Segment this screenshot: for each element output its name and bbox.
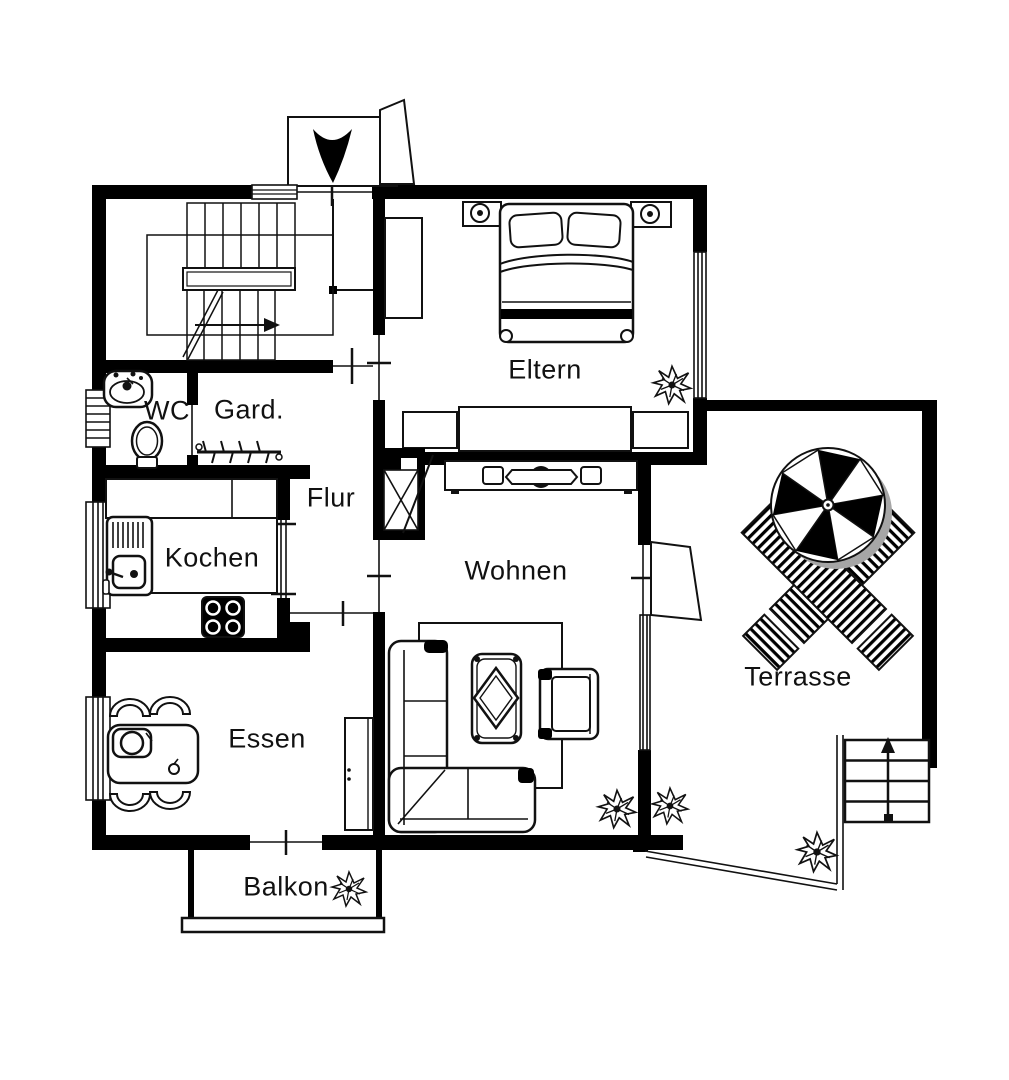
staircase-icon — [147, 203, 333, 360]
wardrobe-icon — [385, 218, 422, 318]
room-label-terrasse: Terrasse — [744, 662, 852, 693]
plant-icon — [332, 872, 366, 906]
coffee-table-icon — [472, 654, 521, 743]
window-icon — [252, 185, 297, 199]
kitchen-sink-icon — [103, 517, 152, 595]
outdoor-stairs-icon — [845, 737, 929, 823]
bedroom — [385, 202, 688, 451]
floor-plan-drawing — [0, 0, 1009, 1080]
floor-plan: WC Gard. Flur Kochen Eltern Wohnen Essen… — [0, 0, 1009, 1080]
nightstand-lamp-icon — [631, 202, 671, 227]
canopy-icon — [380, 100, 414, 184]
room-label-wc: WC — [144, 396, 190, 427]
window-icon — [640, 615, 650, 750]
plant-icon — [797, 832, 836, 871]
room-label-eltern: Eltern — [508, 355, 582, 386]
room-label-kochen: Kochen — [165, 543, 260, 574]
dresser-icon — [403, 407, 688, 451]
toilet-icon — [132, 422, 162, 468]
stove-icon — [202, 597, 244, 637]
plant-icon — [653, 366, 690, 403]
room-label-essen: Essen — [228, 724, 306, 755]
plant-icon — [598, 790, 635, 827]
window-icon — [86, 697, 110, 800]
dining-room — [108, 697, 373, 830]
door-icon — [651, 542, 701, 620]
tv-sideboard-icon — [445, 461, 637, 494]
room-label-garderobe: Gard. — [214, 395, 284, 426]
living-room — [373, 448, 637, 832]
fireplace-icon — [373, 448, 433, 540]
nightstand-lamp-icon — [463, 202, 501, 226]
cabinet-icon — [345, 718, 373, 830]
room-label-balkon: Balkon — [243, 872, 329, 903]
room-label-wohnen: Wohnen — [464, 556, 567, 587]
double-bed-icon — [500, 204, 633, 342]
coat-rack-icon — [196, 441, 282, 463]
plant-icon — [652, 788, 688, 824]
window-icon — [694, 252, 706, 398]
room-label-flur: Flur — [307, 483, 356, 514]
dining-table-icon — [108, 725, 198, 783]
armchair-icon — [538, 669, 598, 739]
